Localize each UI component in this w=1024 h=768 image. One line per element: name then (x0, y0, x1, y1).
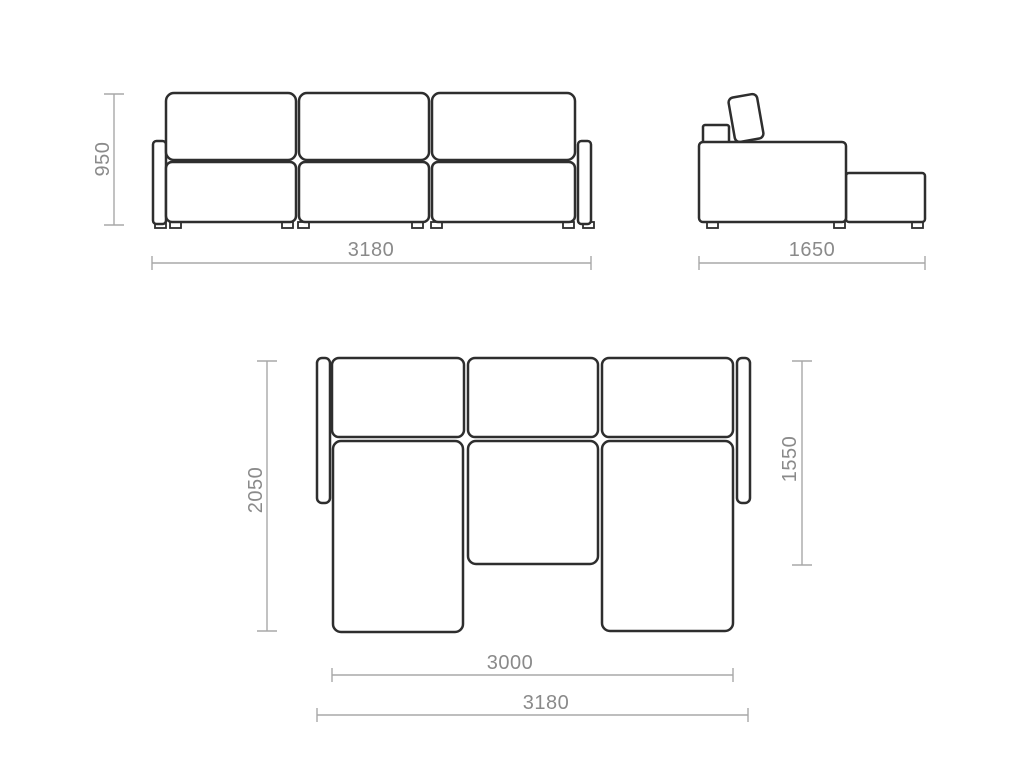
front-back-cushion-3 (432, 93, 575, 160)
front-left-armrest (153, 141, 166, 224)
plan-bed-width-dim: 3000 (332, 652, 733, 682)
plan-bed-width-label: 3000 (487, 652, 534, 674)
plan-back-cushion-1 (332, 358, 464, 437)
plan-chaise-depth-label: 1550 (779, 436, 801, 483)
plan-left-armrest (317, 358, 330, 503)
front-height-label: 950 (92, 142, 114, 177)
side-back-pillow (728, 93, 764, 142)
plan-width-label: 3180 (523, 692, 570, 714)
plan-chaise-depth-dim: 1550 (779, 361, 812, 565)
plan-right-chaise (602, 441, 733, 631)
front-seat-cushion-1 (166, 162, 296, 222)
plan-depth-dim: 2050 (245, 361, 277, 631)
plan-right-armrest (737, 358, 750, 503)
drawing-canvas: 950 3180 1650 (0, 0, 1024, 768)
plan-view: 2050 1550 3000 3180 (245, 358, 812, 722)
front-view: 950 3180 (92, 93, 594, 270)
plan-middle-seat (468, 441, 598, 564)
side-body (699, 142, 846, 222)
plan-width-dim: 3180 (317, 692, 748, 722)
front-width-label: 3180 (348, 239, 395, 261)
sofa-technical-drawing: 950 3180 1650 (0, 0, 1024, 768)
front-seat-cushion-2 (299, 162, 429, 222)
plan-back-cushion-3 (602, 358, 733, 437)
plan-depth-label: 2050 (245, 467, 267, 514)
side-view: 1650 (699, 93, 925, 270)
front-back-cushion-1 (166, 93, 296, 160)
side-depth-dim: 1650 (699, 239, 925, 270)
front-seat-cushion-3 (432, 162, 575, 222)
side-depth-label: 1650 (789, 239, 836, 261)
front-height-dim: 950 (92, 94, 124, 225)
plan-left-chaise (333, 441, 463, 632)
front-right-armrest (578, 141, 591, 224)
plan-back-cushion-2 (468, 358, 598, 437)
front-back-cushion-2 (299, 93, 429, 160)
side-ottoman (846, 173, 925, 222)
front-width-dim: 3180 (152, 239, 591, 270)
